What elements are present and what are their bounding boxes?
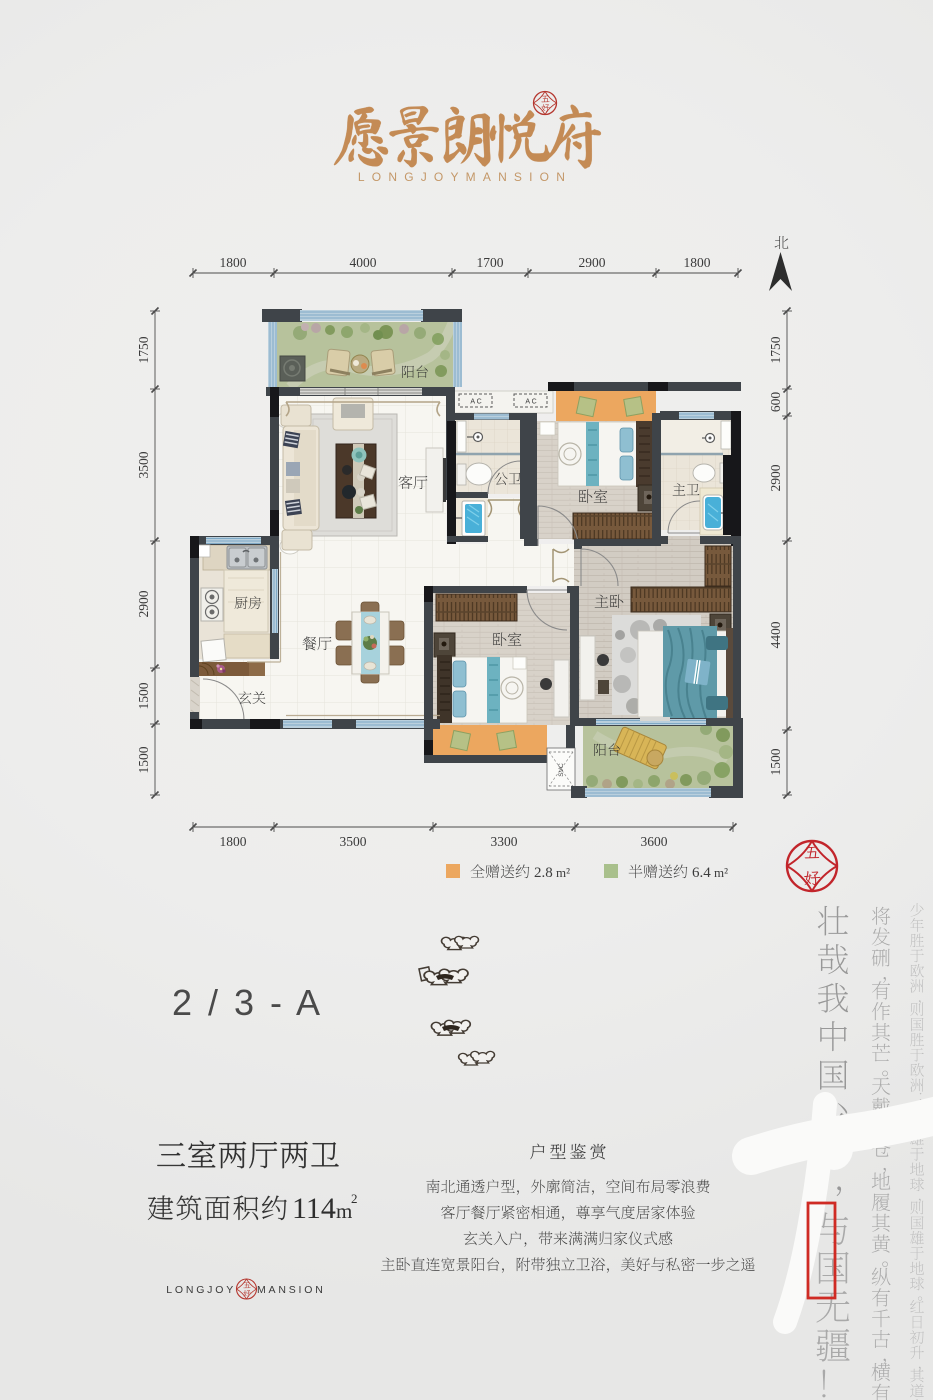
svg-text:2 / 3 - A: 2 / 3 - A <box>172 982 323 1023</box>
svg-text:2900: 2900 <box>579 255 606 270</box>
svg-text:1500: 1500 <box>768 748 783 775</box>
svg-text:LONGJOYMANSION: LONGJOYMANSION <box>358 170 572 184</box>
svg-text:1800: 1800 <box>684 255 711 270</box>
svg-text:LONGJOY: LONGJOY <box>166 1284 236 1296</box>
svg-text:SVC: SVC <box>558 763 565 777</box>
svg-text:m²: m² <box>556 865 570 880</box>
svg-text:3500: 3500 <box>136 451 151 478</box>
svg-text:2: 2 <box>351 1191 358 1206</box>
svg-text:1800: 1800 <box>220 834 247 849</box>
svg-text:3600: 3600 <box>641 834 668 849</box>
svg-text:A C: A C <box>470 399 481 406</box>
svg-text:A C: A C <box>525 399 536 406</box>
svg-text:1500: 1500 <box>136 682 151 709</box>
svg-text:1500: 1500 <box>136 746 151 773</box>
svg-text:114: 114 <box>292 1192 336 1225</box>
svg-text:1750: 1750 <box>136 336 151 363</box>
svg-text:3500: 3500 <box>340 834 367 849</box>
svg-text:2.8: 2.8 <box>534 865 553 881</box>
svg-text:600: 600 <box>768 392 783 413</box>
svg-text:2900: 2900 <box>136 590 151 617</box>
svg-text:3300: 3300 <box>491 834 518 849</box>
svg-text:2900: 2900 <box>768 464 783 491</box>
svg-text:m²: m² <box>714 865 728 880</box>
svg-text:1700: 1700 <box>477 255 504 270</box>
svg-text:m: m <box>336 1199 352 1223</box>
svg-text:4400: 4400 <box>768 621 783 648</box>
svg-text:1800: 1800 <box>220 255 247 270</box>
svg-text:1750: 1750 <box>768 336 783 363</box>
svg-text:4000: 4000 <box>350 255 377 270</box>
svg-text:6.4: 6.4 <box>692 865 711 881</box>
svg-text:MANSION: MANSION <box>257 1284 326 1296</box>
